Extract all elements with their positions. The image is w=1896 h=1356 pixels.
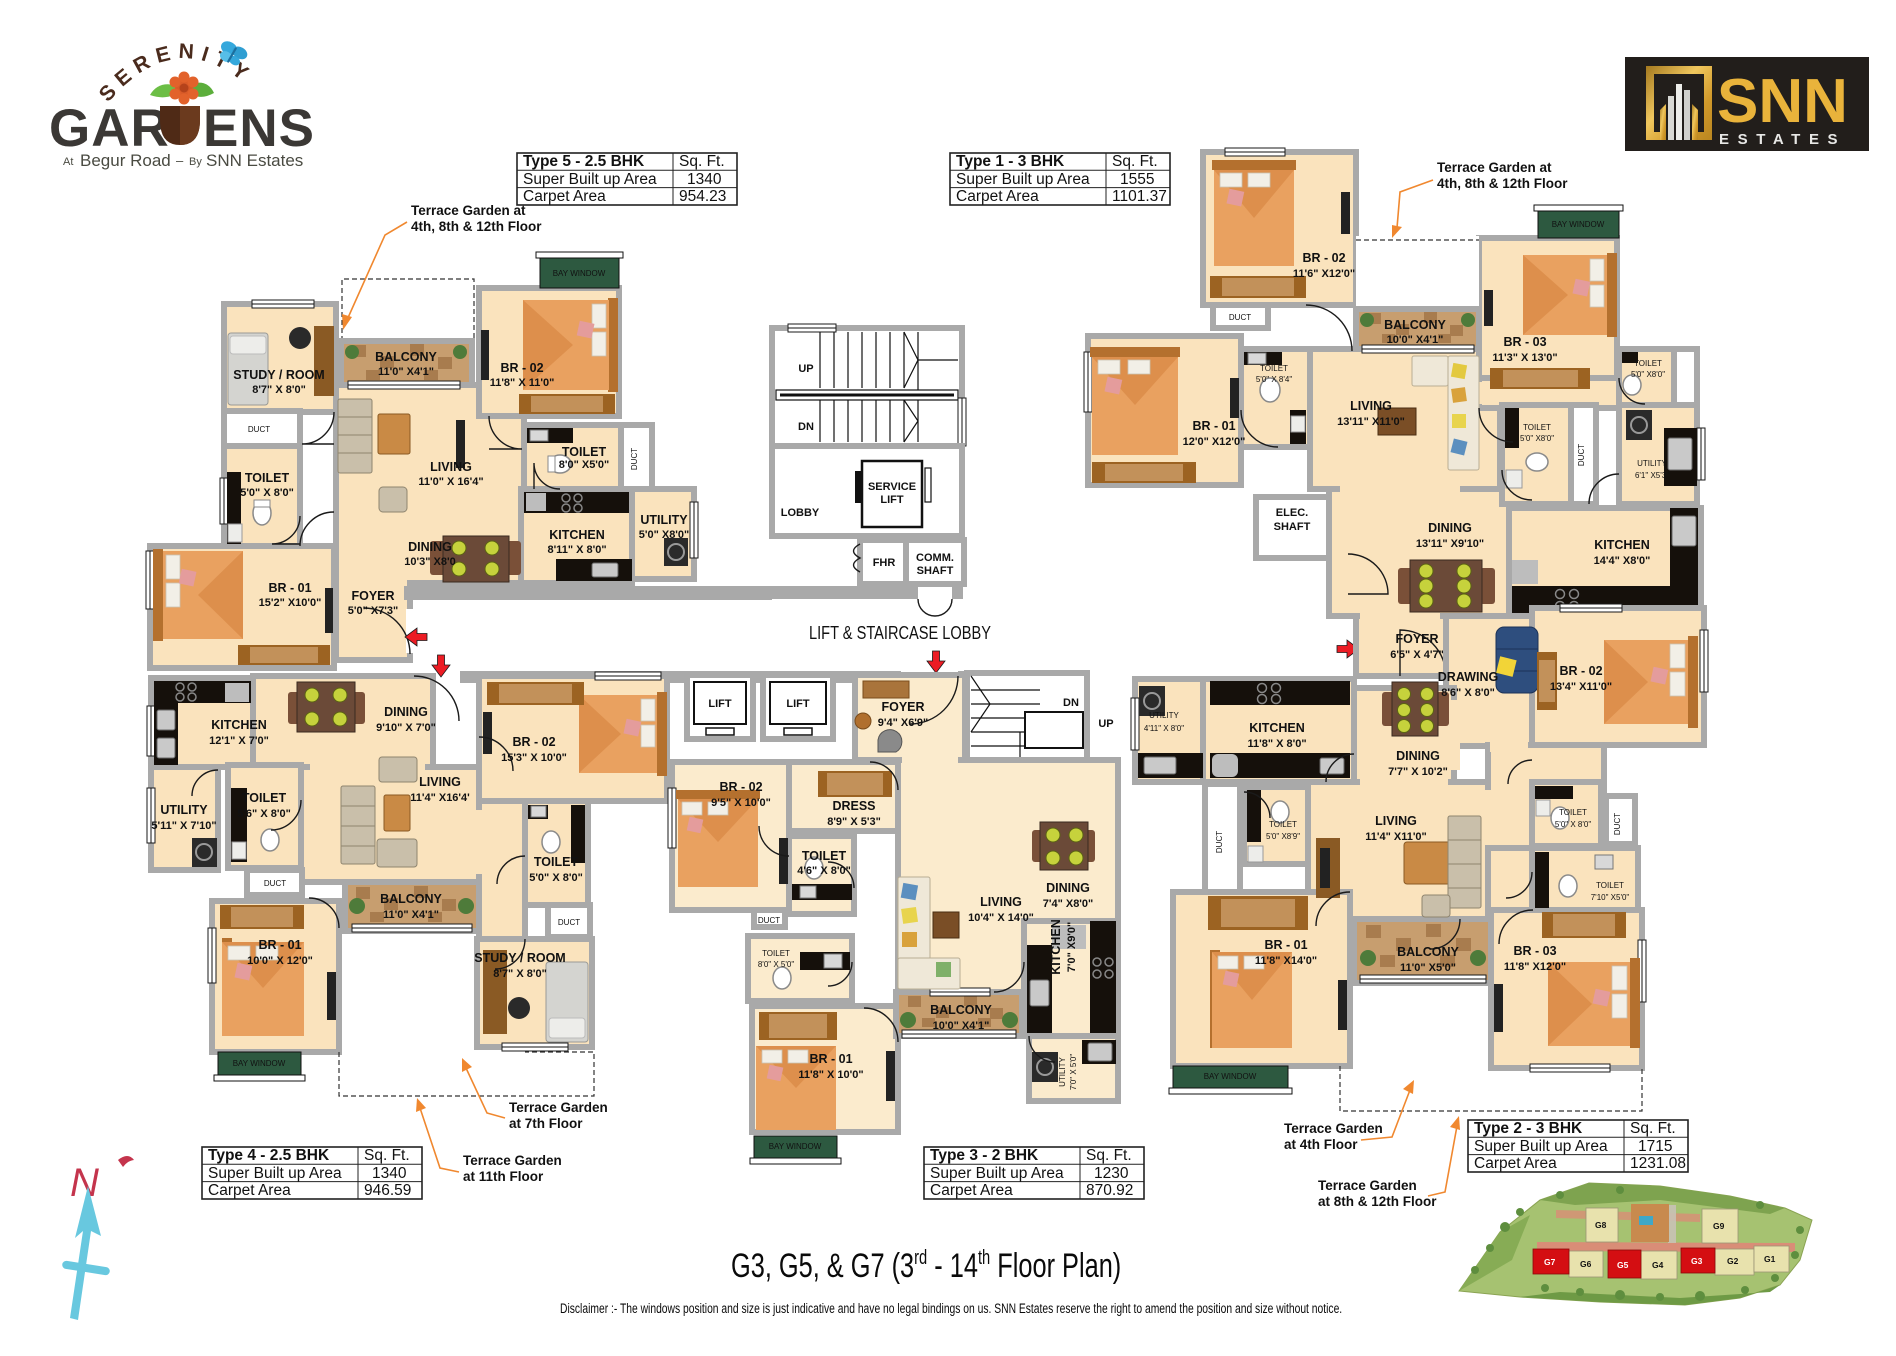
svg-text:5'0" X 8'0": 5'0" X 8'0" (240, 487, 294, 499)
svg-text:Terrace Garden at: Terrace Garden at (1437, 160, 1552, 175)
svg-text:5'11" X 7'10": 5'11" X 7'10" (151, 820, 216, 832)
svg-text:Sq. Ft.: Sq. Ft. (679, 153, 725, 170)
svg-text:G2: G2 (1727, 1256, 1739, 1266)
svg-text:GAR: GAR (49, 99, 170, 158)
svg-text:DUCT: DUCT (758, 916, 780, 925)
svg-text:UTILITY: UTILITY (1058, 1056, 1067, 1086)
svg-text:9'4" X6'9": 9'4" X6'9" (878, 717, 929, 729)
svg-text:DINING: DINING (1428, 521, 1472, 535)
svg-text:G6: G6 (1580, 1259, 1592, 1269)
svg-text:KITCHEN: KITCHEN (549, 528, 605, 542)
svg-text:TOILET: TOILET (534, 855, 579, 869)
svg-text:TOILET: TOILET (762, 949, 790, 958)
svg-text:BR - 02: BR - 02 (1302, 251, 1345, 265)
svg-text:BR - 03: BR - 03 (1503, 335, 1546, 349)
svg-text:BALCONY: BALCONY (1397, 945, 1459, 959)
svg-text:SNN: SNN (1717, 67, 1848, 136)
svg-text:8'0" X 5'0": 8'0" X 5'0" (758, 960, 794, 969)
svg-text:5'0" X8'0": 5'0" X8'0" (1520, 434, 1554, 443)
svg-text:Carpet Area: Carpet Area (208, 1182, 291, 1199)
svg-text:TOILET: TOILET (1596, 881, 1624, 890)
svg-text:LOBBY: LOBBY (781, 507, 820, 519)
svg-text:8'7" X 8'0": 8'7" X 8'0" (493, 968, 547, 980)
svg-text:4th, 8th & 12th Floor: 4th, 8th & 12th Floor (411, 219, 542, 234)
svg-text:Terrace Garden: Terrace Garden (509, 1100, 608, 1115)
svg-text:11'8" X 10'0": 11'8" X 10'0" (798, 1069, 863, 1081)
svg-text:BAY WINDOW: BAY WINDOW (1204, 1072, 1257, 1081)
svg-text:7'0" X 5'0": 7'0" X 5'0" (1069, 1054, 1078, 1090)
svg-text:UTILITY: UTILITY (640, 513, 688, 527)
svg-text:4'6" X 8'0": 4'6" X 8'0" (797, 865, 851, 877)
svg-text:BR - 01: BR - 01 (1192, 419, 1235, 433)
svg-text:Carpet Area: Carpet Area (956, 188, 1039, 205)
svg-text:BR - 02: BR - 02 (719, 780, 762, 794)
svg-text:870.92: 870.92 (1086, 1182, 1133, 1199)
svg-text:Type 1 - 3 BHK: Type 1 - 3 BHK (956, 153, 1065, 170)
svg-text:TOILET: TOILET (242, 791, 287, 805)
svg-text:1101.37: 1101.37 (1112, 188, 1167, 205)
svg-text:LIVING: LIVING (419, 775, 461, 789)
svg-text:Terrace Garden: Terrace Garden (463, 1153, 562, 1168)
svg-text:Super Built up Area: Super Built up Area (208, 1165, 342, 1182)
svg-text:11'4" X16'4': 11'4" X16'4' (410, 792, 470, 804)
svg-text:Terrace Garden at: Terrace Garden at (411, 203, 526, 218)
svg-text:13'4" X11'0": 13'4" X11'0" (1550, 681, 1612, 693)
svg-text:DN: DN (798, 421, 814, 433)
svg-text:12'1" X 7'0": 12'1" X 7'0" (209, 735, 269, 747)
svg-text:11'0" X4'1": 11'0" X4'1" (383, 909, 439, 921)
svg-text:LIFT: LIFT (880, 494, 903, 506)
svg-text:13'11" X11'0": 13'11" X11'0" (1337, 416, 1405, 428)
svg-text:DINING: DINING (408, 540, 452, 554)
svg-text:5'0" X8'0": 5'0" X8'0" (1631, 370, 1665, 379)
svg-text:5'0" X 8'4": 5'0" X 8'4" (1256, 375, 1292, 384)
svg-text:11'8" X14'0": 11'8" X14'0" (1255, 955, 1317, 967)
svg-text:11'8" X12'0": 11'8" X12'0" (1504, 961, 1566, 973)
svg-text:Terrace Garden: Terrace Garden (1318, 1178, 1417, 1193)
svg-text:6'1" X5'3": 6'1" X5'3" (1635, 471, 1669, 480)
svg-text:DUCT: DUCT (1613, 813, 1622, 835)
svg-text:DINING: DINING (384, 705, 428, 719)
svg-text:10'3" X8'0: 10'3" X8'0 (404, 556, 455, 568)
svg-text:5'6" X 8'0": 5'6" X 8'0" (237, 808, 291, 820)
svg-text:BR - 03: BR - 03 (1513, 944, 1556, 958)
svg-text:Terrace Garden: Terrace Garden (1284, 1121, 1383, 1136)
svg-text:DUCT: DUCT (1229, 313, 1251, 322)
svg-text:DINING: DINING (1046, 881, 1090, 895)
svg-text:DN: DN (1063, 697, 1079, 709)
svg-text:1715: 1715 (1638, 1138, 1672, 1155)
svg-text:By: By (189, 156, 202, 168)
svg-text:TOILET: TOILET (1634, 359, 1662, 368)
svg-text:UP: UP (798, 363, 813, 375)
svg-text:15'2" X10'0": 15'2" X10'0" (259, 597, 322, 609)
svg-text:UP: UP (1098, 718, 1113, 730)
svg-text:BR - 01: BR - 01 (809, 1052, 852, 1066)
svg-text:LIVING: LIVING (430, 460, 472, 474)
svg-text:BALCONY: BALCONY (375, 350, 437, 364)
svg-text:BR - 02: BR - 02 (512, 735, 555, 749)
svg-text:Sq. Ft.: Sq. Ft. (1086, 1147, 1132, 1164)
svg-text:4'11" X 8'0": 4'11" X 8'0" (1144, 724, 1184, 733)
svg-text:5'0" X7'3": 5'0" X7'3" (348, 605, 399, 617)
svg-text:at 7th Floor: at 7th Floor (509, 1116, 583, 1131)
svg-text:Type 4 - 2.5 BHK: Type 4 - 2.5 BHK (208, 1147, 330, 1164)
svg-text:LIVING: LIVING (980, 895, 1022, 909)
svg-text:COMM.: COMM. (916, 552, 954, 564)
svg-text:7'7" X 10'2": 7'7" X 10'2" (1388, 766, 1448, 778)
svg-text:DUCT: DUCT (248, 425, 270, 434)
svg-text:BR - 01: BR - 01 (258, 938, 301, 952)
svg-text:BR - 02: BR - 02 (1559, 664, 1602, 678)
svg-text:Super Built up Area: Super Built up Area (930, 1165, 1064, 1182)
svg-text:SHAFT: SHAFT (917, 565, 954, 577)
svg-text:5'0" X 8'0": 5'0" X 8'0" (1555, 820, 1591, 829)
svg-text:at 11th Floor: at 11th Floor (463, 1169, 544, 1184)
svg-text:KITCHEN: KITCHEN (1594, 538, 1650, 552)
svg-text:FOYER: FOYER (1395, 632, 1438, 646)
svg-text:8'0" X5'0": 8'0" X5'0" (559, 459, 610, 471)
svg-text:STUDY / ROOM: STUDY / ROOM (233, 368, 324, 382)
svg-text:ENS: ENS (203, 99, 315, 158)
svg-text:Carpet Area: Carpet Area (930, 1182, 1013, 1199)
svg-text:8'7" X 8'0": 8'7" X 8'0" (252, 384, 306, 396)
svg-text:Sq. Ft.: Sq. Ft. (364, 1147, 410, 1164)
svg-text:DRESS: DRESS (832, 799, 875, 813)
svg-text:UTILITY: UTILITY (160, 803, 208, 817)
svg-text:FHR: FHR (873, 557, 896, 569)
svg-text:LIFT & STAIRCASE LOBBY: LIFT & STAIRCASE LOBBY (809, 623, 991, 643)
svg-text:ELEC.: ELEC. (1276, 507, 1308, 519)
svg-text:Super Built up Area: Super Built up Area (523, 171, 657, 188)
svg-text:DINING: DINING (1396, 749, 1440, 763)
svg-text:At: At (63, 156, 73, 168)
svg-text:FOYER: FOYER (351, 589, 394, 603)
svg-text:4th, 8th & 12th Floor: 4th, 8th & 12th Floor (1437, 176, 1568, 191)
svg-text:12'0" X12'0": 12'0" X12'0" (1183, 436, 1246, 448)
svg-text:9'10" X 7'0": 9'10" X 7'0" (376, 722, 436, 734)
svg-text:LIFT: LIFT (708, 698, 731, 710)
svg-text:–: – (176, 153, 184, 168)
svg-text:G5: G5 (1617, 1260, 1629, 1270)
svg-text:11'8" X 11'0": 11'8" X 11'0" (490, 377, 555, 389)
svg-text:1340: 1340 (687, 171, 722, 188)
svg-text:LIVING: LIVING (1375, 814, 1417, 828)
svg-text:TOILET: TOILET (245, 471, 290, 485)
svg-text:Begur Road: Begur Road (80, 151, 171, 170)
svg-text:DUCT: DUCT (630, 448, 639, 470)
svg-text:Sq. Ft.: Sq. Ft. (1630, 1120, 1676, 1137)
svg-text:BAY WINDOW: BAY WINDOW (233, 1059, 286, 1068)
svg-text:at 8th & 12th Floor: at 8th & 12th Floor (1318, 1194, 1437, 1209)
svg-text:KITCHEN: KITCHEN (1249, 721, 1305, 735)
svg-text:11'6" X12'0": 11'6" X12'0" (1293, 268, 1355, 280)
svg-text:BALCONY: BALCONY (930, 1003, 992, 1017)
svg-text:8'6" X 8'0": 8'6" X 8'0" (1441, 687, 1495, 699)
svg-text:SERVICE: SERVICE (868, 481, 916, 493)
svg-text:BR - 01: BR - 01 (268, 581, 311, 595)
svg-text:5'0" X8'0": 5'0" X8'0" (639, 529, 690, 541)
svg-text:BR - 02: BR - 02 (500, 361, 543, 375)
svg-text:G7: G7 (1544, 1257, 1556, 1267)
svg-text:G8: G8 (1595, 1220, 1607, 1230)
svg-text:STUDY / ROOM: STUDY / ROOM (474, 951, 565, 965)
svg-text:1231.08: 1231.08 (1630, 1155, 1686, 1172)
svg-text:TOILET: TOILET (802, 849, 847, 863)
svg-text:DUCT: DUCT (558, 918, 580, 927)
svg-text:10'4" X 14'0": 10'4" X 14'0" (968, 912, 1034, 924)
svg-text:BAY WINDOW: BAY WINDOW (769, 1142, 822, 1151)
svg-text:BR - 01: BR - 01 (1264, 938, 1307, 952)
svg-text:1230: 1230 (1094, 1165, 1129, 1182)
svg-text:6'5" X 4'7": 6'5" X 4'7" (1390, 649, 1444, 661)
svg-text:5'0" X 8'0": 5'0" X 8'0" (529, 872, 583, 884)
svg-text:G9: G9 (1713, 1221, 1725, 1231)
svg-text:TOILET: TOILET (1260, 364, 1288, 373)
svg-text:BALCONY: BALCONY (380, 892, 442, 906)
svg-text:TOILET: TOILET (1269, 820, 1297, 829)
svg-text:Super Built up Area: Super Built up Area (1474, 1138, 1608, 1155)
svg-text:BALCONY: BALCONY (1384, 318, 1446, 332)
svg-text:BAY WINDOW: BAY WINDOW (1552, 220, 1605, 229)
svg-text:DUCT: DUCT (264, 879, 286, 888)
svg-text:11'0" X 16'4": 11'0" X 16'4" (418, 476, 483, 488)
svg-text:8'11" X 8'0": 8'11" X 8'0" (547, 544, 606, 556)
svg-text:SNN Estates: SNN Estates (206, 151, 303, 170)
svg-text:7'0" X9'0": 7'0" X9'0" (1066, 922, 1078, 973)
svg-text:15'3" X 10'0": 15'3" X 10'0" (501, 752, 567, 764)
svg-text:Carpet Area: Carpet Area (523, 188, 606, 205)
svg-text:Super Built up Area: Super Built up Area (956, 171, 1090, 188)
svg-text:946.59: 946.59 (364, 1182, 411, 1199)
svg-text:9'5" X 10'0": 9'5" X 10'0" (711, 797, 771, 809)
svg-text:Type 5 - 2.5 BHK: Type 5 - 2.5 BHK (523, 153, 645, 170)
svg-text:KITCHEN: KITCHEN (1049, 919, 1063, 975)
svg-text:7'4" X8'0": 7'4" X8'0" (1043, 898, 1094, 910)
svg-text:FOYER: FOYER (881, 700, 924, 714)
svg-text:BAY WINDOW: BAY WINDOW (553, 269, 606, 278)
svg-text:11'3" X 13'0": 11'3" X 13'0" (1492, 352, 1557, 364)
svg-text:11'0" X5'0": 11'0" X5'0" (1400, 962, 1456, 974)
svg-text:11'0" X4'1": 11'0" X4'1" (378, 366, 434, 378)
svg-text:Carpet Area: Carpet Area (1474, 1155, 1557, 1172)
svg-text:Sq. Ft.: Sq. Ft. (1112, 153, 1158, 170)
svg-text:DUCT: DUCT (1215, 831, 1224, 853)
svg-text:N: N (70, 1161, 99, 1205)
svg-text:UTILITY: UTILITY (1637, 459, 1667, 468)
svg-text:10'0" X 12'0": 10'0" X 12'0" (247, 955, 313, 967)
svg-text:1555: 1555 (1120, 171, 1154, 188)
svg-text:DRAWING: DRAWING (1438, 670, 1498, 684)
svg-text:LIVING: LIVING (1350, 399, 1392, 413)
svg-text:TOILET: TOILET (562, 445, 607, 459)
svg-text:DUCT: DUCT (1577, 444, 1586, 466)
svg-text:G1: G1 (1764, 1254, 1776, 1264)
svg-text:Type 2 - 3 BHK: Type 2 - 3 BHK (1474, 1120, 1583, 1137)
svg-text:Type 3 - 2 BHK: Type 3 - 2 BHK (930, 1147, 1039, 1164)
svg-text:ESTATES: ESTATES (1719, 131, 1846, 148)
svg-text:UTILITY: UTILITY (1149, 711, 1179, 720)
svg-text:at 4th Floor: at 4th Floor (1284, 1137, 1358, 1152)
svg-text:11'4" X11'0": 11'4" X11'0" (1365, 831, 1427, 843)
svg-text:14'4" X8'0": 14'4" X8'0" (1594, 555, 1651, 567)
svg-text:8'9" X 5'3": 8'9" X 5'3" (827, 816, 881, 828)
svg-text:1340: 1340 (372, 1165, 407, 1182)
svg-text:11'8" X 8'0": 11'8" X 8'0" (1247, 738, 1306, 750)
svg-text:G4: G4 (1652, 1260, 1664, 1270)
svg-text:KITCHEN: KITCHEN (211, 718, 267, 732)
svg-text:10'0" X4'1": 10'0" X4'1" (933, 1020, 990, 1032)
svg-text:TOILET: TOILET (1523, 423, 1551, 432)
svg-text:Disclaimer :- The windows posi: Disclaimer :- The windows position and s… (560, 1301, 1342, 1317)
svg-text:TOILET: TOILET (1559, 808, 1587, 817)
svg-text:13'11" X9'10": 13'11" X9'10" (1416, 538, 1484, 550)
svg-text:5'0" X8'9": 5'0" X8'9" (1266, 832, 1300, 841)
svg-text:G3: G3 (1691, 1256, 1703, 1266)
svg-text:SHAFT: SHAFT (1274, 521, 1311, 533)
svg-text:954.23: 954.23 (679, 188, 726, 205)
svg-text:7'10" X5'0": 7'10" X5'0" (1591, 893, 1630, 902)
svg-text:LIFT: LIFT (786, 698, 809, 710)
svg-text:10'0" X4'1": 10'0" X4'1" (1387, 334, 1444, 346)
